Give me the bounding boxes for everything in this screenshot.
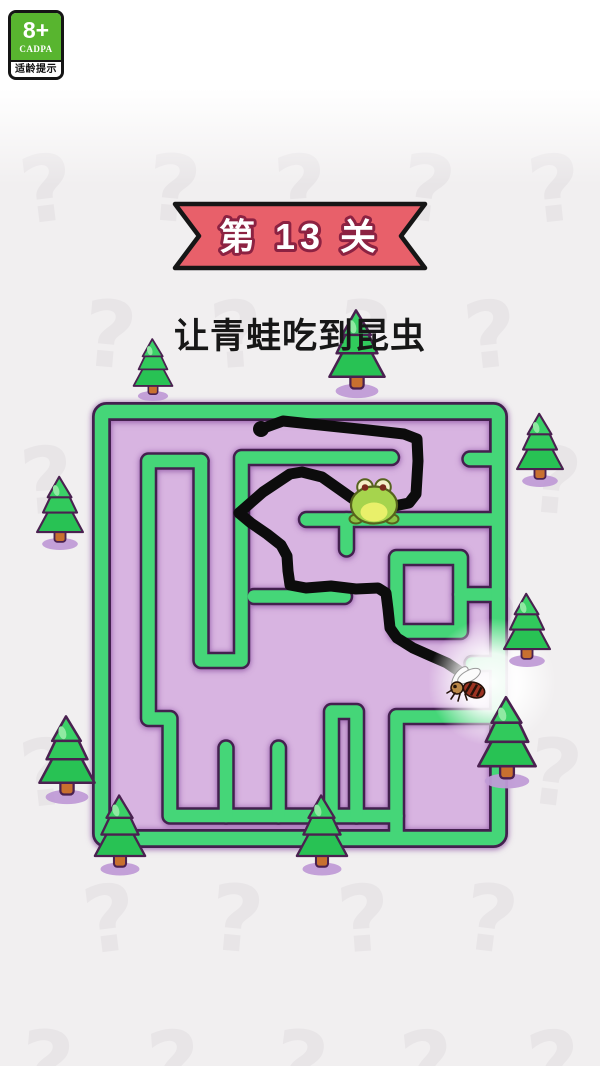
tree [478,697,535,788]
decor-trees [37,310,563,875]
tree-apex [515,594,539,614]
tree [95,796,145,876]
tree [39,716,94,804]
decor-overlay: 第 13 关 [0,0,600,1066]
tree-apex [309,796,335,818]
tree-apex [528,414,552,434]
tree-apex [107,796,133,818]
tree [37,477,83,550]
tree-apex [492,697,522,722]
game-screen: ???????????????????????????????? 第 13 关 … [0,0,600,1066]
tree [504,594,550,667]
instruction-text: 让青蛙吃到昆虫 [0,308,600,359]
age-rating-top: 8+ CADPA [11,13,61,62]
tree [297,796,347,876]
age-rating-value: 8+ [23,19,49,42]
level-banner: 第 13 关 [175,204,425,268]
tree [517,414,563,487]
age-rating-org: CADPA [19,44,52,54]
age-rating-tip: 适龄提示 [11,62,61,77]
level-banner-label: 第 13 关 [219,216,381,257]
tree-apex [52,716,81,740]
age-rating-badge: 8+ CADPA 适龄提示 [8,10,64,80]
tree-apex [48,477,72,497]
